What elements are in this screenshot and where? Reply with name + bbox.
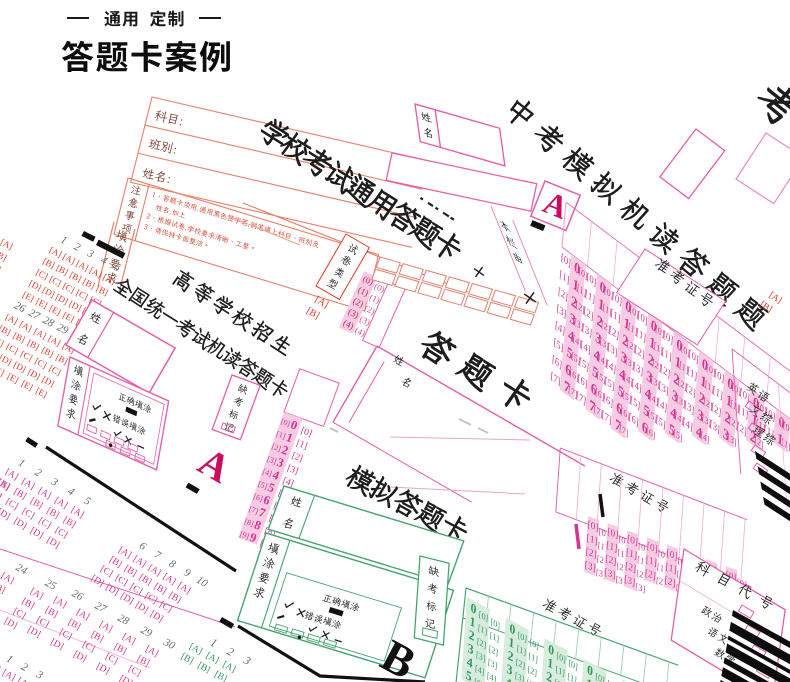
svg-text:2: 2	[546, 667, 553, 682]
